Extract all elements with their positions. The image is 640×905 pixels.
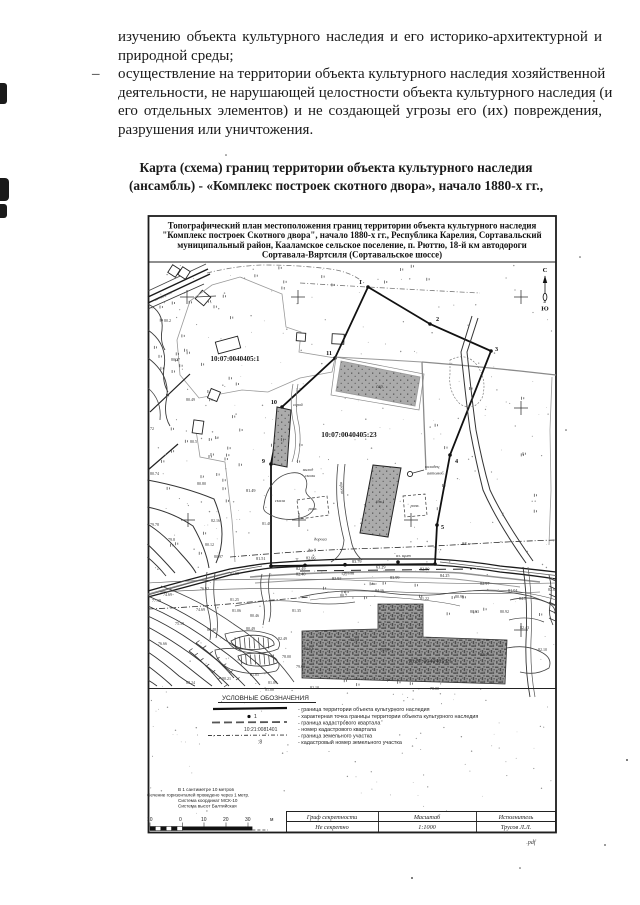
svg-text:(дв.): (дв.): [376, 499, 385, 504]
svg-text:Сечение горизонталей проведено: Сечение горизонталей проведено через 1 м…: [147, 792, 249, 798]
svg-text:Гриф секретности: Гриф секретности: [306, 814, 357, 821]
svg-text:Исполнитель: Исполнитель: [498, 814, 534, 821]
svg-text:77.19: 77.19: [152, 598, 161, 603]
svg-text:78.00: 78.00: [282, 654, 291, 659]
svg-text:автомоб.: автомоб.: [427, 471, 445, 476]
svg-text:83.99: 83.99: [390, 575, 399, 580]
svg-text:10:07:0040405:1: 10:07:0040405:1: [211, 355, 260, 363]
svg-text:84.16: 84.16: [375, 588, 384, 593]
svg-text:79.8: 79.8: [168, 537, 175, 542]
svg-text:С: С: [543, 267, 548, 274]
svg-text:81.35: 81.35: [292, 608, 301, 613]
svg-text:30: 30: [245, 817, 251, 823]
svg-text:- граница земельного участка: - граница земельного участка: [298, 734, 372, 740]
svg-text:63.29: 63.29: [376, 565, 385, 570]
svg-text:10:07:0040405:21: 10:07:0040405:21: [408, 659, 452, 665]
svg-text:В 1 сантиметре 10 метров: В 1 сантиметре 10 метров: [178, 787, 234, 792]
svg-text:- характерная точка границы те: - характерная точка границы территории о…: [298, 714, 478, 720]
svg-text:80.74: 80.74: [150, 471, 159, 476]
svg-text:5: 5: [441, 524, 444, 531]
svg-text:74.69: 74.69: [196, 607, 205, 612]
svg-text:80.24: 80.24: [186, 680, 195, 685]
svg-text:автодорога: автодорога: [153, 289, 172, 301]
svg-text:80.92: 80.92: [500, 609, 509, 614]
svg-text:0: 0: [179, 817, 182, 823]
svg-text:82.49: 82.49: [480, 652, 489, 657]
svg-text:грунт: грунт: [342, 572, 355, 577]
svg-text:80.40: 80.40: [207, 627, 216, 632]
svg-text:81.22: 81.22: [420, 596, 429, 601]
svg-text:80.46: 80.46: [250, 613, 259, 618]
svg-text:выход: выход: [303, 467, 314, 472]
svg-text:80.27: 80.27: [171, 357, 180, 362]
svg-text:82.80: 82.80: [420, 567, 429, 572]
svg-text:80.80: 80.80: [197, 481, 206, 486]
svg-text:.pdf: .pdf: [526, 839, 537, 846]
svg-text:Система высот Балтийская: Система высот Балтийская: [178, 803, 237, 809]
svg-text:10:21:0081401: 10:21:0081401: [244, 727, 278, 733]
svg-text:сво: сво: [371, 581, 376, 586]
svg-text:79.00: 79.00: [380, 647, 389, 652]
svg-text:82.92: 82.92: [332, 576, 341, 581]
svg-text:- кадастровый номер земельного: - кадастровый номер земельного участка: [298, 739, 402, 746]
svg-text:разв.: разв.: [409, 503, 419, 508]
svg-text:сарай: сарай: [293, 402, 303, 407]
svg-text:1.3: 1.3: [296, 387, 301, 392]
svg-text:82.49: 82.49: [296, 566, 305, 571]
svg-text:82.40: 82.40: [296, 572, 305, 577]
svg-text:80.96: 80.96: [455, 594, 464, 599]
svg-text:УСЛОВНЫЕ ОБОЗНАЧЕНИЯ: УСЛОВНЫЕ ОБОЗНАЧЕНИЯ: [222, 695, 309, 702]
svg-text:до-9: до-9: [308, 548, 317, 553]
svg-text:- номер кадастрового квартала: - номер кадастрового квартала: [298, 727, 376, 733]
svg-text:81.00: 81.00: [265, 687, 274, 692]
svg-text:скала: скала: [275, 498, 286, 503]
svg-text:80.49: 80.49: [246, 626, 255, 631]
svg-text:80.97: 80.97: [214, 554, 223, 559]
svg-text:1: 1: [254, 714, 257, 720]
svg-text:81.49: 81.49: [246, 488, 255, 493]
svg-text:80.93: 80.93: [470, 609, 479, 614]
svg-text:дорога: дорога: [314, 537, 328, 542]
svg-text:- граница кадастрового квартал: - граница кадастрового квартала: [298, 721, 380, 727]
svg-text:84 м: 84 м: [462, 541, 471, 546]
svg-text:84.25: 84.25: [440, 573, 449, 578]
svg-text:81.51: 81.51: [256, 556, 265, 561]
svg-text:Не секретно: Не секретно: [314, 824, 348, 831]
svg-text:20: 20: [223, 817, 229, 823]
svg-text:3: 3: [495, 346, 498, 353]
svg-text:82.16: 82.16: [211, 518, 220, 523]
svg-text:10: 10: [271, 399, 277, 406]
svg-text:76.92: 76.92: [200, 586, 209, 591]
svg-text:72: 72: [150, 426, 154, 431]
svg-text:84.5: 84.5: [519, 596, 526, 601]
svg-text:м: м: [270, 817, 274, 823]
svg-text:4: 4: [455, 458, 458, 465]
svg-text:80.12: 80.12: [205, 542, 214, 547]
svg-text:75.19: 75.19: [175, 621, 184, 626]
svg-text:81.05: 81.05: [250, 672, 259, 677]
svg-text:Масштаб: Масштаб: [413, 814, 441, 821]
svg-text:сар.: сар.: [376, 385, 384, 390]
svg-text:9: 9: [262, 458, 265, 465]
svg-text:Топографический план местополо: Топографический план местоположения гран…: [168, 221, 537, 231]
svg-text:83.79: 83.79: [352, 559, 361, 564]
svg-text:"Комплекс построек Скотного дв: "Комплекс построек Скотного двора", нача…: [162, 230, 541, 240]
svg-text:81.62: 81.62: [350, 637, 359, 642]
svg-text:тропа: тропа: [339, 482, 345, 495]
svg-text:10:07:0040405:23: 10:07:0040405:23: [321, 430, 377, 439]
svg-text:82.10: 82.10: [310, 685, 319, 690]
svg-text:82.43: 82.43: [520, 625, 529, 630]
svg-text:Система координат МСК-10: Система координат МСК-10: [178, 798, 238, 803]
svg-text:11: 11: [326, 350, 332, 357]
svg-text:колодец: колодец: [425, 464, 440, 469]
svg-text:79.00: 79.00: [296, 664, 305, 669]
svg-text::8: :8: [258, 740, 262, 746]
svg-text:10: 10: [147, 817, 153, 823]
svg-text:82.49: 82.49: [278, 636, 287, 641]
svg-text:74.69: 74.69: [163, 592, 172, 597]
svg-text:1:1000: 1:1000: [418, 824, 436, 831]
svg-text:81.48: 81.48: [262, 521, 271, 526]
svg-text:81.25: 81.25: [230, 597, 239, 602]
svg-text:76.66: 76.66: [158, 641, 167, 646]
svg-text:80.5: 80.5: [190, 439, 197, 444]
svg-text:81.62: 81.62: [304, 646, 313, 651]
svg-text:10: 10: [201, 817, 207, 823]
svg-text:80.49: 80.49: [186, 397, 195, 402]
svg-text:Трусов Л.Л.: Трусов Л.Л.: [501, 824, 531, 831]
svg-text:80.21: 80.21: [222, 676, 231, 681]
svg-text:80.2: 80.2: [164, 318, 171, 323]
svg-text:вл. щит: вл. щит: [396, 553, 411, 558]
svg-text:- граница территории объекта к: - граница территории объекта культурного…: [298, 707, 430, 713]
svg-text:79.78: 79.78: [150, 522, 159, 527]
svg-text:скалы: скалы: [305, 473, 316, 478]
svg-text:82.10: 82.10: [538, 647, 547, 652]
svg-text:Т: Т: [296, 557, 299, 562]
svg-text:1: 1: [359, 279, 362, 286]
svg-text:муниципальный район, Кааламско: муниципальный район, Кааламское сельское…: [177, 240, 527, 250]
svg-text:82.06: 82.06: [306, 556, 315, 561]
svg-text:2: 2: [436, 316, 439, 323]
svg-text:81.09: 81.09: [268, 680, 277, 685]
svg-text:Ю: Ю: [541, 306, 549, 313]
svg-text:81.06: 81.06: [232, 608, 241, 613]
svg-text:82.6: 82.6: [548, 587, 555, 592]
svg-text:81.08: 81.08: [230, 571, 239, 576]
svg-text:80.7: 80.7: [340, 593, 347, 598]
svg-text:Сортавала-Вяртсиля (Сортавальс: Сортавала-Вяртсиля (Сортавальское шоссе): [262, 250, 442, 260]
